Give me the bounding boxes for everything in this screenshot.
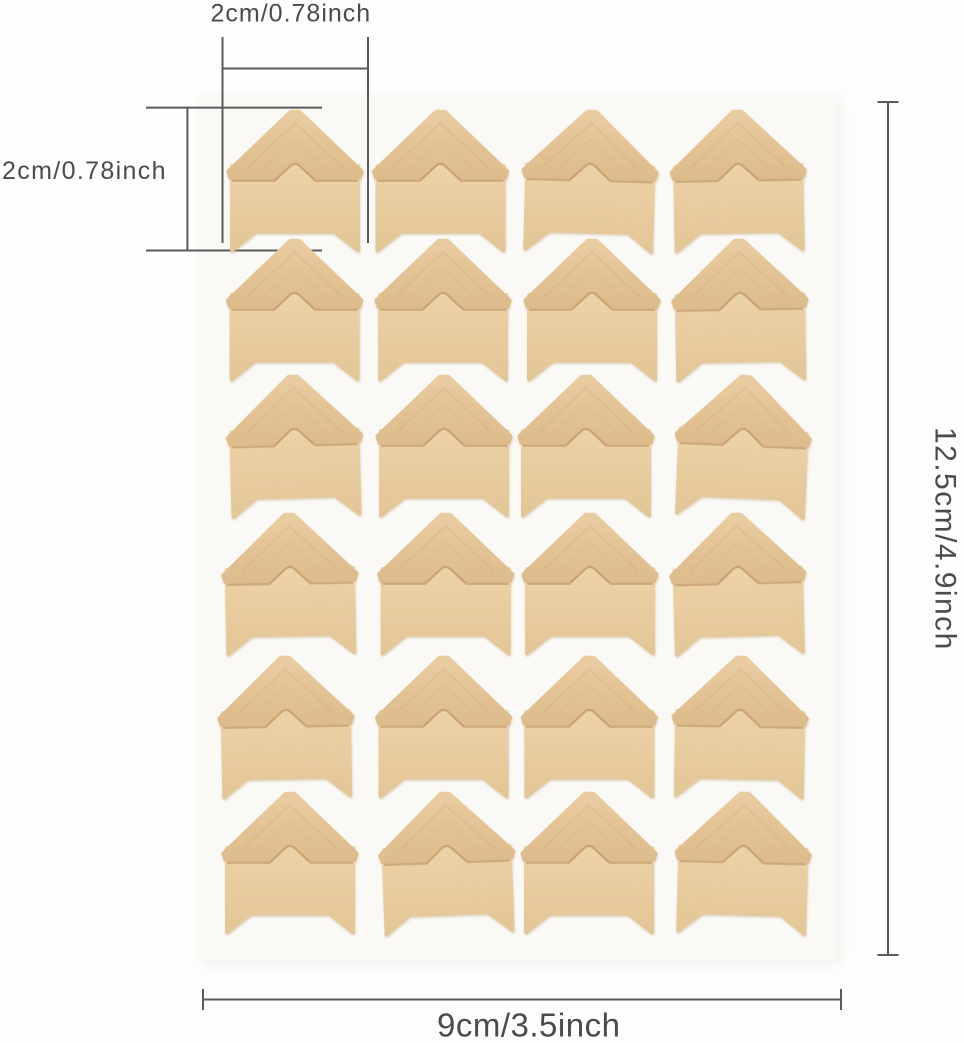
svg-text:9cm/3.5inch: 9cm/3.5inch (437, 1007, 620, 1043)
svg-text:12.5cm/4.9inch: 12.5cm/4.9inch (929, 427, 962, 651)
svg-text:2cm/0.78inch: 2cm/0.78inch (2, 157, 167, 185)
svg-text:2cm/0.78inch: 2cm/0.78inch (211, 0, 372, 28)
